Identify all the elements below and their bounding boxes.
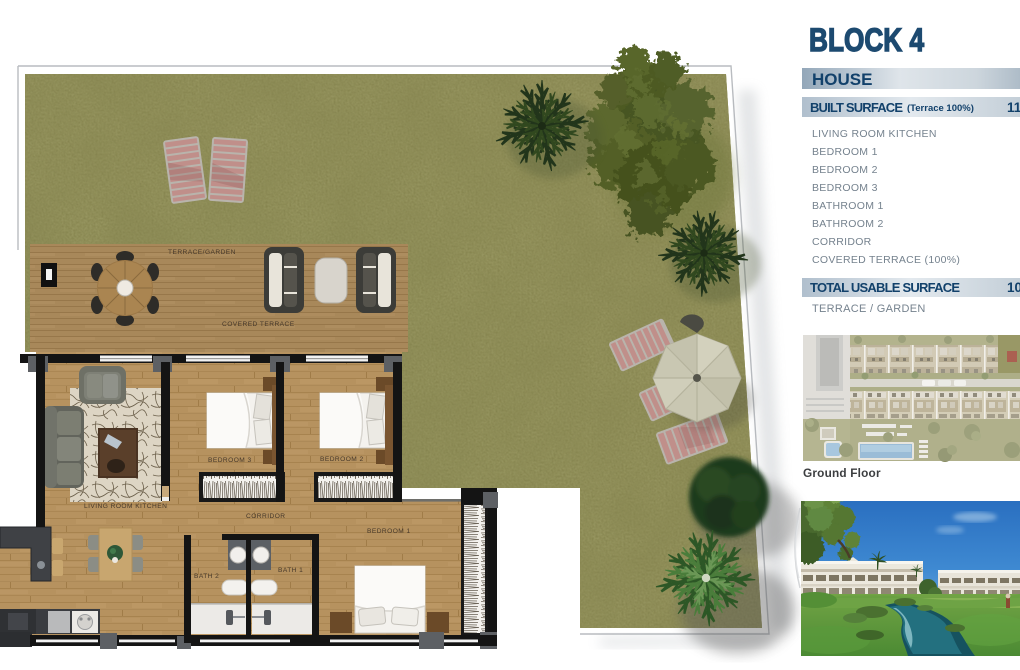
svg-text:BEDROOM 1: BEDROOM 1 — [812, 146, 878, 158]
svg-text:TERRACE/GARDEN: TERRACE/GARDEN — [168, 249, 236, 256]
svg-text:BUILT SURFACE: BUILT SURFACE — [810, 100, 903, 115]
svg-text:Ground Floor: Ground Floor — [803, 466, 881, 480]
svg-text:BEDROOM 2: BEDROOM 2 — [320, 456, 364, 463]
svg-text:117: 117 — [1007, 100, 1020, 115]
svg-text:BATHROOM 2: BATHROOM 2 — [812, 218, 884, 230]
svg-text:BATH 2: BATH 2 — [194, 573, 219, 580]
svg-text:BEDROOM 3: BEDROOM 3 — [812, 182, 878, 194]
svg-text:LIVING ROOM KITCHEN: LIVING ROOM KITCHEN — [84, 503, 167, 510]
svg-text:COVERED TERRACE: COVERED TERRACE — [222, 321, 295, 328]
svg-text:CORRIDOR: CORRIDOR — [246, 513, 286, 520]
svg-text:HOUSE: HOUSE — [812, 70, 872, 89]
svg-text:BLOCK 4: BLOCK 4 — [809, 24, 925, 59]
svg-text:TERRACE / GARDEN: TERRACE / GARDEN — [812, 303, 926, 315]
svg-text:CORRIDOR: CORRIDOR — [812, 236, 872, 248]
svg-text:(Terrace 100%): (Terrace 100%) — [907, 103, 974, 114]
svg-text:LIVING ROOM KITCHEN: LIVING ROOM KITCHEN — [812, 128, 937, 140]
svg-text:BATHROOM 1: BATHROOM 1 — [812, 200, 884, 212]
svg-text:BEDROOM 1: BEDROOM 1 — [367, 528, 411, 535]
svg-text:COVERED TERRACE (100%): COVERED TERRACE (100%) — [812, 254, 960, 266]
svg-text:TOTAL USABLE SURFACE: TOTAL USABLE SURFACE — [810, 280, 960, 295]
svg-text:105: 105 — [1007, 280, 1020, 295]
svg-text:BEDROOM 3: BEDROOM 3 — [208, 457, 252, 464]
svg-text:BATH 1: BATH 1 — [278, 567, 303, 574]
svg-text:BEDROOM 2: BEDROOM 2 — [812, 164, 878, 176]
